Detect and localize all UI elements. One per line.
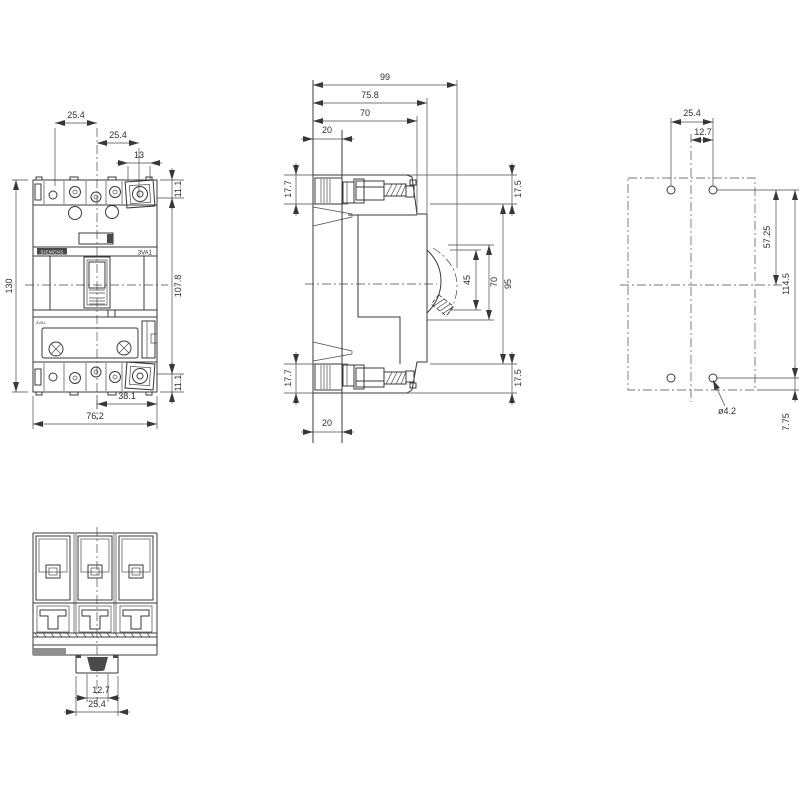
dim-rear-hole-pitch-x: 25.4 [683, 108, 701, 118]
dim-front-terminal-span: 107.8 [173, 275, 183, 298]
dim-side-45: 45 [462, 275, 472, 285]
dim-front-half-width: 38.1 [118, 391, 136, 401]
side-view-body [284, 80, 517, 443]
rear-mounting-view: 25.4 12.7 57.25 114.5 7.75 ø4.2 [620, 108, 799, 431]
dim-side-rail-top: 20 [322, 125, 332, 135]
front-view: SIEMENS 3VA1 3VA1 [4, 110, 184, 429]
dim-rear-edge-offset: 7.75 [781, 413, 791, 431]
dim-side-175-top: 17.5 [513, 180, 523, 198]
dimension-drawing: SIEMENS 3VA1 3VA1 [0, 0, 800, 800]
dim-front-pole-pitch-2: 25.4 [109, 130, 127, 140]
dim-side-175-bottom: 17.5 [513, 369, 523, 387]
side-top-terminal [315, 178, 416, 204]
dim-front-height: 130 [4, 278, 14, 293]
dim-rear-hole-pitch-y: 114.5 [781, 273, 791, 295]
mounting-holes [667, 186, 717, 382]
side-bottom-terminal [315, 364, 416, 390]
product-label: 3VA1 [138, 251, 153, 257]
pole-module-2 [78, 536, 112, 632]
rear-view-dimensions: 25.4 12.7 57.25 114.5 7.75 ø4.2 [671, 108, 799, 431]
dim-side-depth-total: 99 [380, 72, 390, 82]
side-view: 99 75.8 70 20 17.7 17.5 45 70 95 [283, 72, 523, 443]
dim-front-width: 76.2 [86, 411, 104, 421]
cover-screws [49, 341, 131, 356]
dim-rear-hole-diameter: ø4.2 [718, 406, 736, 416]
dim-rear-half-pitch: 12.7 [694, 127, 712, 137]
brand-logo-text: SIEMENS [40, 250, 63, 255]
dim-bottom-tab-full: 25.4 [88, 699, 106, 709]
dim-front-bottom-offset: 11.1 [173, 375, 183, 392]
dim-side-depth-758: 75.8 [361, 90, 379, 100]
handle-off-position [431, 295, 453, 316]
dim-side-177-top: 17.7 [283, 180, 293, 198]
dim-front-terminal-width: 13 [134, 150, 144, 160]
drawing-canvas: SIEMENS 3VA1 3VA1 [0, 0, 800, 800]
dim-rear-upper: 57.25 [762, 226, 772, 249]
ratings-fine-print: 3VA1 [36, 320, 46, 325]
pole-module-1 [36, 536, 70, 632]
side-view-dimensions: 99 75.8 70 20 17.7 17.5 45 70 95 [283, 72, 523, 432]
front-bottom-terminals [49, 362, 155, 390]
pole-module-3 [119, 536, 153, 632]
dim-side-70: 70 [489, 277, 499, 287]
mounting-outline [628, 178, 755, 390]
dim-bottom-tab-half: 12.7 [92, 685, 110, 695]
dim-side-95: 95 [503, 279, 513, 289]
dim-side-depth-70: 70 [360, 108, 370, 118]
front-view-body: SIEMENS 3VA1 3VA1 [25, 128, 168, 420]
dim-side-rail-bottom: 20 [322, 418, 332, 428]
bottom-view-body [33, 527, 157, 705]
dim-side-177-bottom: 17.7 [283, 369, 293, 387]
bottom-view: 12.7 25.4 [33, 527, 157, 716]
dim-front-pole-pitch-1: 25.4 [67, 110, 85, 120]
dim-front-top-offset: 11.1 [173, 181, 183, 198]
